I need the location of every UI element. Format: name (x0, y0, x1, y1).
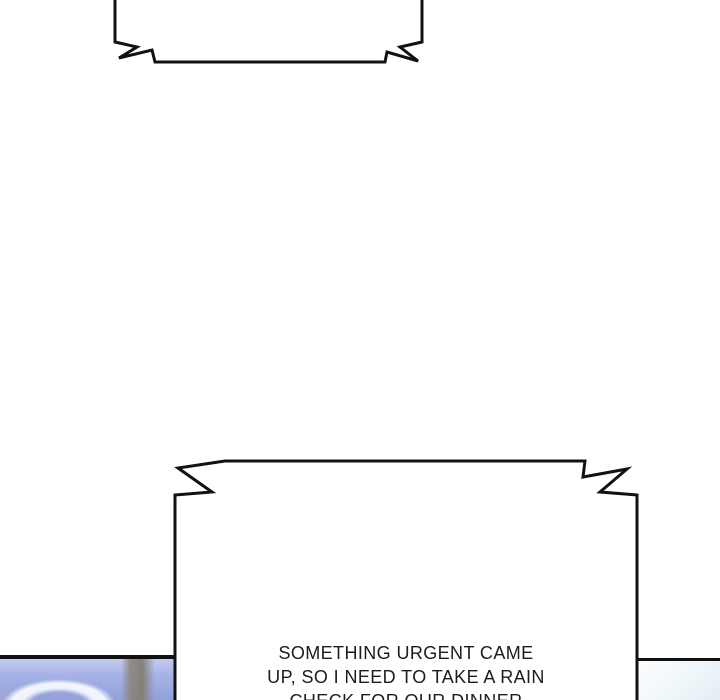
bottom-bubble-text: SOMETHING URGENT CAME UP, SO I NEED TO T… (175, 641, 637, 700)
bubble-text-line-2: UP, SO I NEED TO TAKE A RAIN (175, 665, 637, 689)
bubble-text-line-3: CHECK FOR OUR DINNER (175, 689, 637, 700)
speech-bubbles-layer (0, 0, 720, 700)
top-speech-bubble (115, 0, 422, 62)
comic-page: SOMETHING URGENT CAME UP, SO I NEED TO T… (0, 0, 720, 700)
bubble-text-line-1: SOMETHING URGENT CAME (175, 641, 637, 665)
